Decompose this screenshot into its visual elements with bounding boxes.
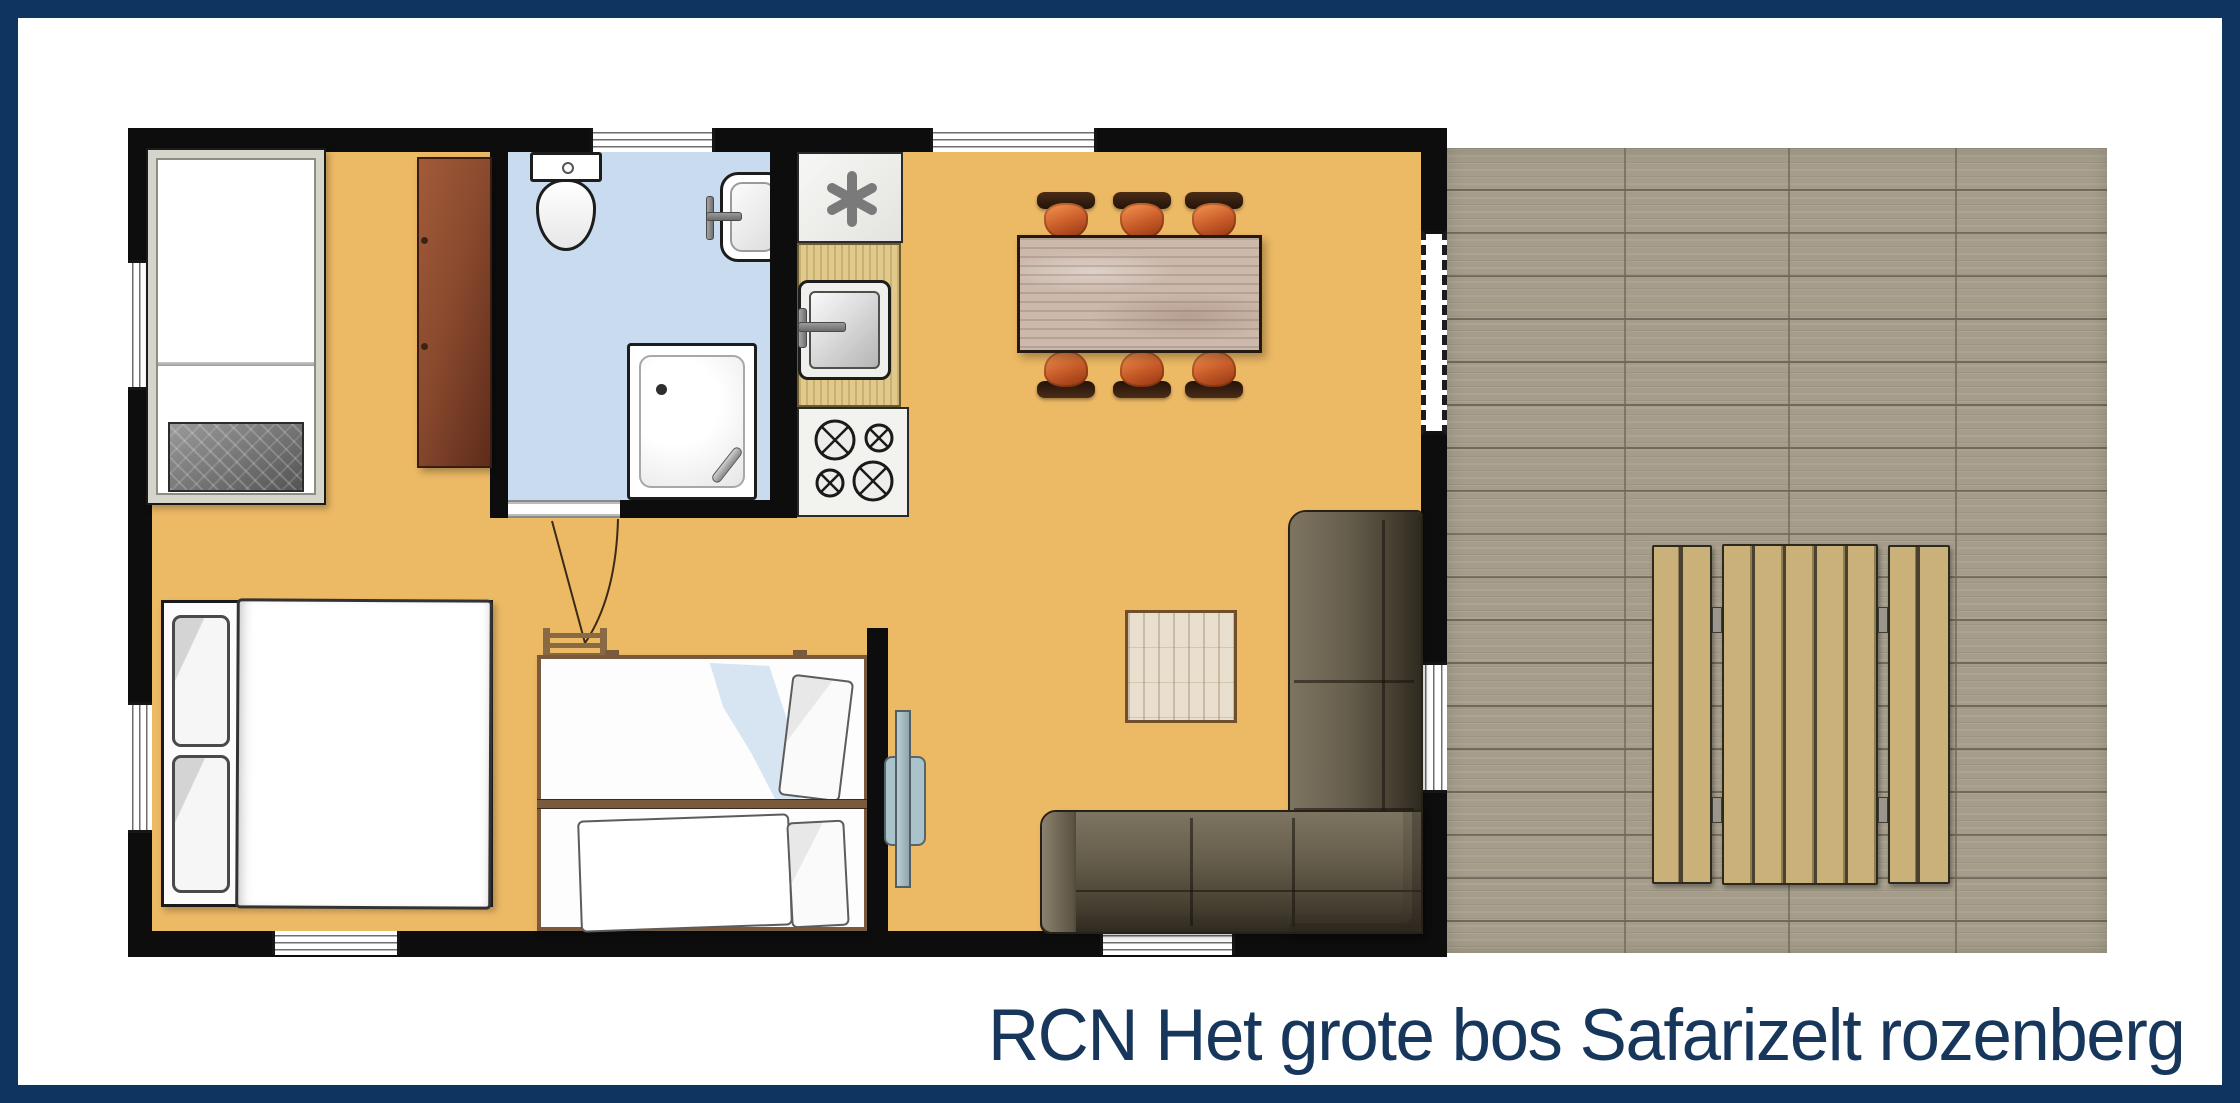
sofa-cushion-seam: [1294, 808, 1414, 811]
sofa-cushion-seam: [1190, 818, 1193, 926]
picnic-connector: [1712, 797, 1722, 823]
stove-icon: [797, 407, 909, 517]
wall-kitchen: [770, 150, 797, 518]
wardrobe-knob: [421, 343, 428, 350]
window-icon: [930, 128, 1097, 152]
washbasin-faucet-icon: [706, 212, 742, 221]
single-bed-icon: [146, 148, 326, 505]
toilet-tank: [530, 152, 602, 182]
wardrobe-icon: [417, 157, 492, 468]
picnic-connector: [1712, 607, 1722, 633]
dining-chair-icon: [1185, 348, 1243, 398]
toilet-bowl: [536, 179, 596, 251]
dining-table-icon: [1017, 235, 1262, 353]
window-icon: [1421, 662, 1447, 793]
entrance-door-icon: [1421, 230, 1447, 435]
window-icon: [590, 128, 715, 152]
deck-seam: [1955, 148, 1957, 953]
pillow-icon: [172, 615, 230, 747]
sofa-cushion-seam: [1294, 680, 1414, 683]
sofa-armrest: [1042, 812, 1076, 932]
wardrobe-knob: [421, 237, 428, 244]
picnic-table-icon: [1722, 544, 1878, 885]
window-icon: [272, 931, 400, 955]
page-background: RCN Het grote bos Safarizelt rozenberg: [18, 18, 2222, 1085]
window-icon: [1100, 931, 1235, 955]
stove-burners-icon: [799, 409, 911, 519]
duvet: [577, 813, 793, 932]
picnic-bench-icon: [1888, 545, 1950, 884]
wall-bathroom-left: [490, 150, 508, 518]
bunk-bracket: [793, 650, 807, 659]
bunk-bracket: [605, 650, 619, 659]
wall-mirror-icon: [895, 710, 911, 888]
rug-icon: [1125, 610, 1237, 723]
pillow-icon: [786, 820, 849, 929]
picnic-connector: [1878, 607, 1888, 633]
dining-chair-icon: [1037, 348, 1095, 398]
picnic-connector: [1878, 797, 1888, 823]
bed-fold: [158, 362, 314, 366]
pillow-icon: [172, 755, 230, 893]
duvet: [235, 598, 493, 909]
bunk-bed-icon: [537, 655, 868, 931]
shower-drain: [656, 384, 667, 395]
kitchen-faucet-icon: [798, 322, 846, 332]
toilet-icon: [530, 152, 602, 252]
pillow-icon: [778, 674, 854, 803]
picnic-bench-icon: [1652, 545, 1712, 884]
bunk-divider: [537, 799, 868, 809]
sofa-icon: [1042, 812, 1421, 932]
asterisk-icon: [799, 154, 905, 245]
double-bed-icon: [161, 600, 493, 907]
window-icon: [128, 702, 152, 833]
page-title: RCN Het grote bos Safarizelt rozenberg: [988, 998, 2184, 1075]
deck-seam: [1624, 148, 1626, 953]
bed-cushion: [168, 422, 304, 492]
water-heater-icon: [797, 152, 903, 243]
dining-chair-icon: [1113, 348, 1171, 398]
shower-icon: [627, 343, 757, 500]
sofa-corner: [1290, 812, 1421, 932]
toilet-flush-button: [562, 162, 574, 174]
